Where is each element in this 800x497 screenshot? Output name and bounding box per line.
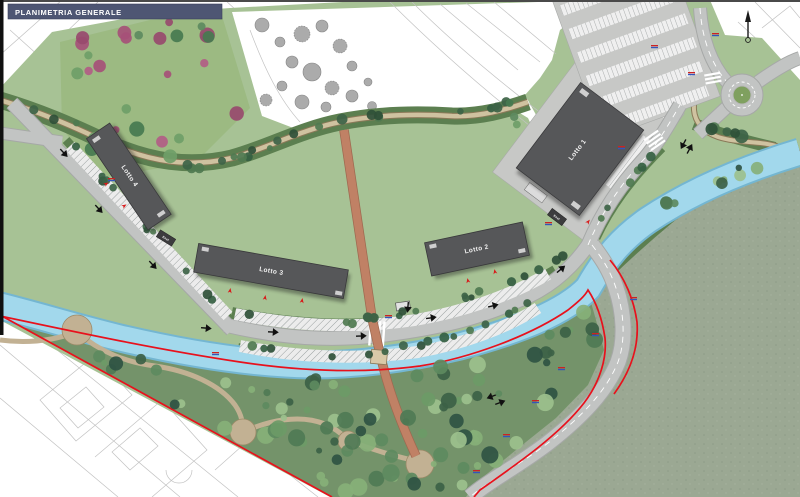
tree (521, 272, 529, 280)
tree (72, 143, 80, 151)
tree (122, 104, 132, 114)
tree (433, 360, 448, 375)
tree (315, 123, 323, 131)
tree (510, 113, 518, 121)
tree (329, 380, 338, 389)
tree (421, 392, 435, 406)
tree (660, 196, 672, 208)
tree (263, 389, 270, 396)
tree (552, 256, 561, 265)
tree (507, 277, 516, 286)
tree (330, 437, 338, 445)
tree (171, 30, 184, 43)
tree (604, 205, 611, 212)
tree (382, 464, 399, 481)
tree (200, 59, 208, 67)
tree (423, 337, 432, 346)
tree (248, 341, 258, 351)
tree (276, 402, 288, 414)
tree (136, 354, 147, 365)
tree (458, 462, 470, 474)
tree (512, 307, 519, 314)
tree (462, 295, 470, 303)
tree (109, 356, 123, 370)
tree (359, 434, 376, 451)
roundabout (721, 74, 763, 116)
site-plan-canvas: Lotto 4 Lotto 3 Lotto 2 Lotto 1 (0, 0, 800, 497)
tree (203, 290, 213, 300)
tree (337, 114, 348, 125)
tree (493, 103, 500, 110)
tree (281, 415, 287, 421)
tree (198, 22, 206, 30)
tree (433, 447, 448, 462)
left-frame-edge (0, 0, 4, 335)
tree (382, 348, 389, 355)
tree (183, 268, 190, 275)
tree (218, 157, 226, 165)
tree (412, 308, 419, 315)
tree (84, 67, 92, 75)
tree (194, 163, 204, 173)
tree (472, 391, 482, 401)
tree (523, 299, 531, 307)
tree (332, 454, 343, 465)
tree (475, 287, 484, 296)
tree (637, 163, 646, 172)
tree (109, 184, 117, 192)
tree (418, 429, 427, 438)
tree (450, 432, 466, 448)
tree (304, 407, 311, 414)
tree (99, 173, 106, 180)
tree (101, 360, 107, 366)
top-frame-edge (0, 0, 800, 2)
tree (174, 134, 184, 144)
tree (84, 51, 92, 59)
tree (473, 374, 485, 386)
tree (267, 145, 273, 151)
tree (457, 108, 464, 115)
tree (716, 177, 728, 189)
tree (344, 434, 360, 450)
tree (286, 398, 293, 405)
tree (461, 394, 472, 405)
tree (751, 162, 764, 175)
tree (120, 32, 131, 43)
tree (411, 369, 424, 382)
tree (398, 307, 406, 315)
tree (513, 121, 521, 129)
tree (356, 426, 367, 437)
tree (156, 136, 168, 148)
tree (328, 353, 335, 360)
tree (343, 318, 351, 326)
tree (537, 394, 554, 411)
tree (73, 120, 80, 127)
tree (495, 390, 502, 397)
tree (510, 436, 524, 450)
page-title: PLANIMETRIA GENERALE (15, 8, 122, 17)
tree (316, 448, 322, 454)
tree (165, 18, 173, 26)
tree (163, 149, 177, 163)
tree (534, 265, 543, 274)
tree (441, 393, 457, 409)
tree (245, 310, 254, 319)
tree (203, 31, 215, 43)
tree (363, 313, 373, 323)
tree (76, 31, 89, 44)
tree (231, 153, 238, 160)
tree (367, 110, 377, 120)
tree (134, 31, 143, 40)
tree (338, 385, 350, 397)
tree (230, 106, 244, 120)
tree (151, 365, 162, 376)
tree (400, 410, 416, 426)
tree (270, 420, 287, 437)
tree (29, 105, 38, 114)
tree (450, 333, 457, 340)
tree (431, 461, 437, 467)
tree (337, 412, 354, 429)
tree (71, 67, 83, 79)
tree (267, 344, 276, 353)
tree (375, 433, 388, 446)
tree (706, 123, 718, 135)
tree (474, 462, 481, 469)
tree (527, 347, 543, 363)
tree (237, 152, 247, 162)
tree (439, 333, 449, 343)
tree (365, 351, 373, 359)
tree (93, 60, 106, 73)
tree (543, 359, 550, 366)
tree (449, 414, 463, 428)
tree (273, 137, 281, 145)
tree (320, 421, 333, 434)
tree (183, 160, 193, 170)
tree (170, 400, 180, 410)
tree (626, 178, 635, 187)
tree (469, 356, 486, 373)
tree (466, 327, 474, 335)
tree (364, 413, 377, 426)
tree (164, 71, 172, 79)
tree (49, 115, 59, 125)
tree (399, 341, 408, 350)
tree (734, 169, 746, 181)
tree (217, 421, 232, 436)
tree (646, 152, 656, 162)
tree (129, 121, 144, 136)
tree (407, 477, 421, 491)
tree (385, 450, 398, 463)
planimetry-drawing: Lotto 4 Lotto 3 Lotto 2 Lotto 1 (0, 0, 800, 497)
tree (320, 478, 329, 487)
tree (153, 32, 166, 45)
tree (482, 320, 490, 328)
tree (598, 215, 605, 222)
tree (310, 380, 320, 390)
tree (289, 129, 298, 138)
tree (220, 377, 231, 388)
tree (506, 99, 514, 107)
tree (248, 386, 255, 393)
tree (481, 446, 498, 463)
tree (288, 429, 305, 446)
title-bar: PLANIMETRIA GENERALE (8, 4, 222, 19)
tree (457, 480, 468, 491)
tree (736, 165, 742, 171)
tree (548, 349, 555, 356)
tree (369, 471, 385, 487)
tree (576, 305, 591, 320)
tree (730, 128, 740, 138)
tree (723, 127, 732, 136)
tree (262, 402, 269, 409)
tree (435, 483, 444, 492)
tree (560, 327, 571, 338)
tree (260, 345, 267, 352)
tree (545, 330, 555, 340)
